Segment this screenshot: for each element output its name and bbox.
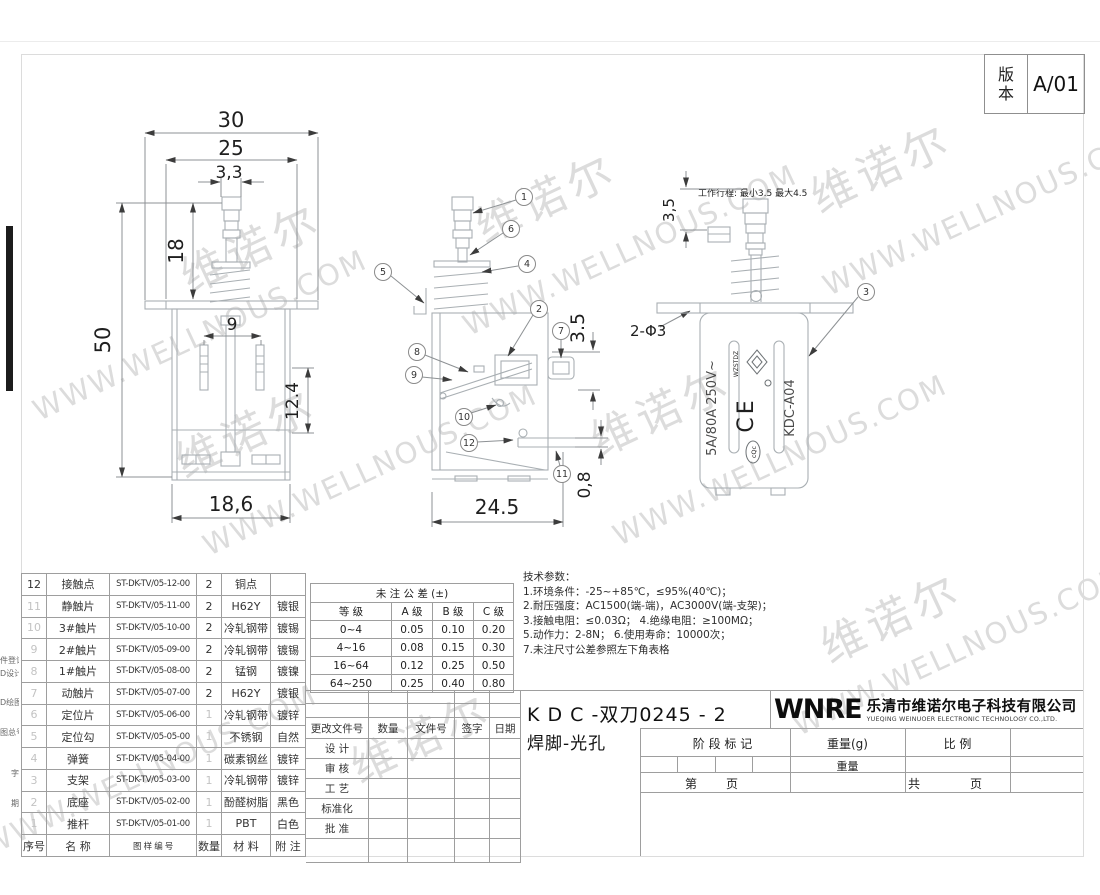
signature-row-cell: [369, 779, 408, 798]
signature-row-cell: [408, 739, 455, 758]
revision-header-row: 更改文件号数量文件号签字日期: [306, 718, 521, 739]
margin-label: 件登记: [0, 655, 19, 666]
bom-no: 2: [22, 792, 47, 813]
tolerance-header-row-cell: A 级: [392, 603, 433, 620]
page-total-label: 共: [908, 775, 920, 792]
bom-no: 1: [22, 813, 47, 834]
bom-row: 81#触片ST-DK-TV/05-08-002锰钢镀镍: [22, 661, 306, 683]
tech-param-line: 5.动作力：2-8N； 6.使用寿命：10000次；: [523, 628, 853, 643]
bom-note: 镀银: [271, 683, 306, 704]
bom-qty: 1: [197, 705, 222, 726]
bom-no: 3: [22, 770, 47, 791]
bom-code: ST-DK-TV/05-01-00: [110, 813, 197, 834]
signature-row-cell: [490, 819, 521, 838]
tolerance-row-cell: 0.10: [433, 621, 474, 638]
bom-material: 酚醛树脂: [222, 792, 271, 813]
svg-text:1: 1: [521, 192, 527, 203]
tech-param-line: 3.接触电阻：≤0.03Ω； 4.绝缘电阻：≥100MΩ；: [523, 614, 853, 629]
tolerance-row-cell: 16~64: [311, 657, 392, 674]
tolerance-row-cell: 0.20: [474, 621, 513, 638]
tolerance-table: 未 注 公 差 (±)等 级A 级B 级C 级0~40.050.100.204~…: [310, 583, 514, 693]
revision-row-cell: [408, 690, 455, 703]
signature-row-cell: [408, 759, 455, 778]
bom-material: 冷轧钢带: [222, 639, 271, 660]
section-plunger: [434, 197, 490, 267]
titleblock-line: [520, 690, 521, 856]
bom-code: ST-DK-TV/05-10-00: [110, 618, 197, 639]
titleblock-line: [640, 792, 1083, 793]
svg-text:2: 2: [536, 304, 542, 315]
bom-note: 自然: [271, 726, 306, 747]
revision-row-cell: [490, 704, 521, 717]
bom-material: 碳素钢丝: [222, 748, 271, 769]
bom-header-cell: 附 注: [271, 835, 306, 856]
bom-qty: 2: [197, 683, 222, 704]
bom-no: 10: [22, 618, 47, 639]
bom-note: 镀锌: [271, 770, 306, 791]
signature-table: 更改文件号数量文件号签字日期设 计审 核工 艺标准化批 准: [305, 690, 521, 856]
bom-no: 5: [22, 726, 47, 747]
signature-row-cell: [490, 739, 521, 758]
ce-marking: CE: [734, 397, 759, 432]
revision-row: [306, 704, 521, 718]
bom-name: 支架: [47, 770, 110, 791]
dim-2-phi3: 2-Φ3: [630, 322, 666, 340]
signature-row-cell: 工 艺: [306, 779, 369, 798]
logo-marking: WZSTDZ: [733, 351, 740, 377]
signature-row-cell: [369, 759, 408, 778]
page-label: 页: [726, 775, 738, 792]
tolerance-row-cell: 0.50: [474, 657, 513, 674]
dim-3-3: 3,3: [215, 163, 242, 183]
bom-material: 冷轧钢带: [222, 618, 271, 639]
company-block: WNRE 乐清市维诺尔电子科技有限公司 YUEQING WEINUOER ELE…: [774, 692, 1080, 726]
revision-header-row-cell: 文件号: [408, 718, 455, 738]
signature-row-cell: [306, 839, 369, 862]
titleblock-line: [752, 756, 753, 772]
bom-code: ST-DK-TV/05-09-00: [110, 639, 197, 660]
revision-row-cell: [455, 704, 490, 717]
bom-material: 冷轧钢带: [222, 705, 271, 726]
dim-24-5: 24.5: [475, 495, 520, 519]
bom-code: ST-DK-TV/05-03-00: [110, 770, 197, 791]
dim-3-5-section: 3.5: [567, 313, 589, 343]
callout-12: 12: [461, 435, 514, 452]
bom-row: 1推杆ST-DK-TV/05-01-001PBT白色: [22, 813, 306, 835]
signature-row-cell: [455, 839, 490, 862]
front-plunger: [212, 197, 250, 268]
bom-code: ST-DK-TV/05-02-00: [110, 792, 197, 813]
bom-no: 9: [22, 639, 47, 660]
bom-note: [271, 574, 306, 595]
signature-row-cell: [455, 799, 490, 818]
brand-diamond-icon: [747, 350, 771, 386]
svg-text:9: 9: [411, 370, 417, 381]
callout-5: 5: [375, 264, 425, 304]
callout-10: 10: [456, 405, 497, 426]
svg-text:8: 8: [414, 347, 420, 358]
bom-row: 3支架ST-DK-TV/05-03-001冷轧钢带镀锌: [22, 770, 306, 792]
bom-name: 2#触片: [47, 639, 110, 660]
bom-note: 镀锡: [271, 618, 306, 639]
bom-row: 5定位勾ST-DK-TV/05-05-001不锈钢自然: [22, 726, 306, 748]
revision-row-cell: [455, 690, 490, 703]
svg-text:10: 10: [458, 412, 470, 423]
bom-code: ST-DK-TV/05-07-00: [110, 683, 197, 704]
bom-qty: 1: [197, 748, 222, 769]
bom-qty: 2: [197, 574, 222, 595]
bom-no: 6: [22, 705, 47, 726]
bom-row: 6定位片ST-DK-TV/05-06-001冷轧钢带镀锌: [22, 705, 306, 727]
bom-note: 镀锌: [271, 705, 306, 726]
bom-row: 11静触片ST-DK-TV/05-11-002H62Y镀银: [22, 596, 306, 618]
bom-header-cell: 图 样 编 号: [110, 835, 197, 856]
svg-text:7: 7: [558, 326, 564, 337]
dim-0-8: 0,8: [575, 471, 595, 498]
front-spring: [210, 270, 250, 302]
dim-18: 18: [164, 238, 188, 263]
bom-name: 推杆: [47, 813, 110, 834]
company-name-en: YUEQING WEINUOER ELECTRONIC TECHNOLOGY C…: [867, 716, 1077, 723]
bom-code: ST-DK-TV/05-06-00: [110, 705, 197, 726]
weight-row-label: 重量: [790, 758, 905, 774]
bom-no: 12: [22, 574, 47, 595]
tolerance-header-row-cell: C 级: [474, 603, 513, 620]
side-plunger: [708, 199, 779, 302]
page-label-2: 页: [970, 775, 982, 792]
bom-qty: 2: [197, 661, 222, 682]
bom-code: ST-DK-TV/05-05-00: [110, 726, 197, 747]
bom-no: 4: [22, 748, 47, 769]
signature-row-cell: 标准化: [306, 799, 369, 818]
callout-9: 9: [406, 367, 453, 384]
titleblock-line: [640, 728, 1083, 729]
revision-row: [306, 690, 521, 704]
bom-qty: 2: [197, 618, 222, 639]
part-name: 焊脚-光孔: [527, 729, 606, 754]
tolerance-row-cell: 4~16: [311, 639, 392, 656]
bom-header-row: 序号名 称图 样 编 号数量材 料附 注: [22, 835, 306, 857]
cqc-marking: cQc: [750, 445, 758, 458]
bom-name: 底座: [47, 792, 110, 813]
tolerance-row: 0~40.050.100.20: [311, 621, 513, 639]
bom-header-cell: 序号: [22, 835, 47, 856]
bom-material: H62Y: [222, 596, 271, 617]
bom-name: 静触片: [47, 596, 110, 617]
bom-name: 定位片: [47, 705, 110, 726]
tech-params-lines: 1.环境条件：-25~+85℃，≤95%(40℃)；2.耐压强度：AC1500(…: [523, 585, 853, 658]
svg-text:11: 11: [556, 469, 568, 480]
bom-no: 7: [22, 683, 47, 704]
bom-header-cell: 材 料: [222, 835, 271, 856]
tolerance-row-cell: 0.12: [392, 657, 433, 674]
signature-row-cell: [408, 819, 455, 838]
drawing-sheet: 维诺尔维诺尔维诺尔维诺尔维诺尔维诺尔维诺尔WWW.WELLNOUS.COMWWW…: [0, 0, 1100, 895]
bom-qty: 1: [197, 792, 222, 813]
signature-row-cell: [408, 779, 455, 798]
margin-label: 字: [0, 768, 19, 779]
side-view: 工作行程: 最小3.5 最大4.5 3,5 2-Φ3: [630, 171, 875, 495]
bom-no: 8: [22, 661, 47, 682]
signature-row-cell: [490, 799, 521, 818]
callout-1: 1: [473, 189, 533, 214]
tech-param-line: 7.未注尺寸公差参照左下角表格: [523, 643, 853, 658]
signature-row-cell: [408, 839, 455, 862]
bom-material: 冷轧钢带: [222, 770, 271, 791]
svg-text:5: 5: [380, 267, 386, 278]
bom-note: 白色: [271, 813, 306, 834]
bom-header-cell: 名 称: [47, 835, 110, 856]
tech-param-line: 2.耐压强度：AC1500(端-端)，AC3000V(端-支架)；: [523, 599, 853, 614]
margin-label: 期: [0, 798, 19, 809]
section-hook: [414, 288, 426, 314]
bom-row: 7动触片ST-DK-TV/05-07-002H62Y镀银: [22, 683, 306, 705]
signature-row: [306, 839, 521, 863]
svg-text:3: 3: [863, 287, 869, 298]
revision-value: A/01: [1028, 55, 1084, 113]
bom-table: 12接触点ST-DK-TV/05-12-002铜点11静触片ST-DK-TV/0…: [21, 573, 306, 857]
signature-row-cell: [490, 759, 521, 778]
bom-material: PBT: [222, 813, 271, 834]
signature-row-cell: [369, 799, 408, 818]
tolerance-header-row-cell: 等 级: [311, 603, 392, 620]
margin-label: 图总号: [0, 727, 19, 738]
scale-label: 比 例: [905, 735, 1010, 752]
svg-text:12: 12: [463, 438, 475, 449]
revision-row-cell: [306, 690, 369, 703]
margin-label: D绘图: [0, 697, 19, 708]
signature-row: 工 艺: [306, 779, 521, 799]
signature-row-cell: [369, 739, 408, 758]
signature-row-cell: [455, 819, 490, 838]
signature-row-cell: 设 计: [306, 739, 369, 758]
bom-code: ST-DK-TV/05-12-00: [110, 574, 197, 595]
bom-name: 接触点: [47, 574, 110, 595]
bom-row: 12接触点ST-DK-TV/05-12-002铜点: [22, 574, 306, 596]
bom-qty: 2: [197, 596, 222, 617]
signature-row-cell: 批 准: [306, 819, 369, 838]
bom-row: 4弹簧ST-DK-TV/05-04-001碳素钢丝镀锌: [22, 748, 306, 770]
bom-name: 1#触片: [47, 661, 110, 682]
revision-row-cell: [369, 704, 408, 717]
signature-row-cell: [455, 779, 490, 798]
bom-row: 92#触片ST-DK-TV/05-09-002冷轧钢带镀锡: [22, 639, 306, 661]
signature-row: 审 核: [306, 759, 521, 779]
titleblock-top-line: [305, 690, 1083, 691]
dim-50: 50: [91, 327, 115, 354]
bom-material: 锰钢: [222, 661, 271, 682]
bom-name: 弹簧: [47, 748, 110, 769]
svg-text:4: 4: [524, 259, 530, 270]
titleblock-line: [640, 728, 641, 856]
bom-note: 镀镍: [271, 661, 306, 682]
signature-row-cell: [455, 739, 490, 758]
tolerance-header-row: 等 级A 级B 级C 级: [311, 603, 513, 621]
bom-material: 铜点: [222, 574, 271, 595]
tolerance-title: 未 注 公 差 (±): [311, 584, 513, 603]
bom-material: H62Y: [222, 683, 271, 704]
signature-row: 批 准: [306, 819, 521, 839]
titleblock-line: [640, 756, 1083, 757]
bom-note: 黑色: [271, 792, 306, 813]
dim-3-5-side: 3,5: [660, 198, 678, 222]
section-view: 3.5 0,8 24.5 1 6 4 5 2: [375, 189, 609, 528]
callout-11: 11: [554, 451, 571, 483]
titleblock-line: [715, 756, 716, 772]
margin-label: D设计: [0, 668, 19, 679]
revision-header-row-cell: 日期: [490, 718, 521, 738]
page-first-label: 第: [685, 775, 697, 792]
revision-header-row-cell: 数量: [369, 718, 408, 738]
bom-qty: 1: [197, 770, 222, 791]
tolerance-row-cell: 0.15: [433, 639, 474, 656]
titleblock-line: [770, 690, 771, 728]
company-name-cn: 乐清市维诺尔电子科技有限公司: [867, 695, 1077, 716]
tolerance-row-cell: 0~4: [311, 621, 392, 638]
bom-note: 镀银: [271, 596, 306, 617]
callout-2: 2: [508, 301, 548, 357]
bom-note: 镀锡: [271, 639, 306, 660]
tech-param-line: 1.环境条件：-25~+85℃，≤95%(40℃)；: [523, 585, 853, 600]
company-logo: WNRE: [774, 694, 862, 725]
revision-header-row-cell: 签字: [455, 718, 490, 738]
signature-row: 标准化: [306, 799, 521, 819]
titleblock-line: [677, 756, 678, 772]
bom-header-cell: 数量: [197, 835, 222, 856]
revision-row-cell: [306, 704, 369, 717]
callout-6: 6: [470, 221, 520, 256]
stage-label: 阶 段 标 记: [655, 735, 790, 752]
revision-label-char2: 本: [998, 84, 1014, 103]
front-view: 30 25 3,3 18 50 9 12.4 18,6: [91, 108, 318, 523]
revision-label: 版 本: [985, 55, 1028, 113]
signature-row: 设 计: [306, 739, 521, 759]
dim-12-4: 12.4: [283, 382, 303, 420]
dim-18-6: 18,6: [209, 492, 254, 516]
rating-marking: 5A/80A 250V~: [705, 360, 720, 456]
callout-3: 3: [809, 284, 875, 357]
bom-code: ST-DK-TV/05-11-00: [110, 596, 197, 617]
bom-qty: 1: [197, 726, 222, 747]
signature-row-cell: [369, 819, 408, 838]
svg-text:6: 6: [508, 224, 514, 235]
bom-row: 103#触片ST-DK-TV/05-10-002冷轧钢带镀锡: [22, 618, 306, 640]
signature-row-cell: [408, 799, 455, 818]
front-dimensions: 30 25 3,3 18 50 9 12.4 18,6: [91, 108, 318, 523]
section-spring: [434, 272, 488, 309]
bom-row: 2底座ST-DK-TV/05-02-001酚醛树脂黑色: [22, 792, 306, 814]
bom-code: ST-DK-TV/05-08-00: [110, 661, 197, 682]
revision-row-cell: [490, 690, 521, 703]
tolerance-row-cell: 0.08: [392, 639, 433, 656]
titleblock-line: [1010, 728, 1011, 792]
bom-material: 不锈钢: [222, 726, 271, 747]
tolerance-row-cell: 0.05: [392, 621, 433, 638]
bom-name: 3#触片: [47, 618, 110, 639]
bom-note: 镀锌: [271, 748, 306, 769]
revision-label-char1: 版: [998, 65, 1014, 84]
section-housing: [432, 313, 575, 481]
tech-params: 技术参数： 1.环境条件：-25~+85℃，≤95%(40℃)；2.耐压强度：A…: [523, 570, 853, 657]
tolerance-row-cell: 0.30: [474, 639, 513, 656]
revision-row-cell: [369, 690, 408, 703]
bom-qty: 2: [197, 639, 222, 660]
signature-row-cell: [490, 779, 521, 798]
part-code: K D C -双刀0245 - 2: [527, 700, 727, 727]
tolerance-row-cell: 0.25: [433, 657, 474, 674]
bom-name: 定位勾: [47, 726, 110, 747]
dim-30: 30: [218, 108, 245, 132]
signature-row-cell: [455, 759, 490, 778]
tolerance-header-row-cell: B 级: [433, 603, 474, 620]
bom-qty: 1: [197, 813, 222, 834]
signature-row-cell: [490, 839, 521, 862]
revision-header-row-cell: 更改文件号: [306, 718, 369, 738]
tolerance-row: 16~640.120.250.50: [311, 657, 513, 675]
signature-row-cell: [369, 839, 408, 862]
weight-label: 重量(g): [790, 735, 905, 752]
bom-code: ST-DK-TV/05-04-00: [110, 748, 197, 769]
bom-no: 11: [22, 596, 47, 617]
revision-box: 版 本 A/01: [984, 54, 1085, 114]
tech-params-title: 技术参数：: [523, 570, 853, 585]
signature-row-cell: 审 核: [306, 759, 369, 778]
model-marking: KDC-A04: [783, 379, 798, 436]
tolerance-row: 4~160.080.150.30: [311, 639, 513, 657]
revision-row-cell: [408, 704, 455, 717]
dim-9: 9: [227, 315, 238, 335]
dim-25: 25: [218, 136, 243, 160]
bom-name: 动触片: [47, 683, 110, 704]
